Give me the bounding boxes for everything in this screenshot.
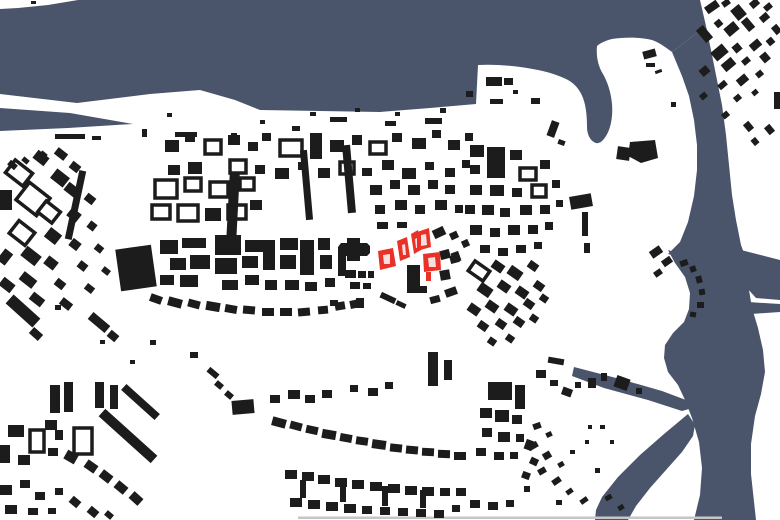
building (95, 382, 104, 408)
building (302, 472, 314, 481)
building (444, 360, 452, 380)
building (377, 222, 388, 229)
building (45, 420, 57, 430)
building (570, 450, 575, 454)
building (480, 245, 490, 253)
building (540, 205, 550, 214)
building (280, 255, 296, 269)
building (388, 484, 400, 493)
building (407, 286, 427, 293)
building (292, 126, 300, 131)
building (601, 373, 607, 381)
building (350, 282, 360, 289)
building (0, 190, 12, 210)
building (167, 113, 172, 117)
building (280, 238, 298, 250)
building (428, 352, 438, 386)
building (488, 502, 498, 510)
building (402, 168, 416, 179)
building (300, 240, 314, 275)
building (242, 256, 258, 268)
building (300, 480, 306, 498)
building (356, 298, 364, 308)
building (48, 508, 56, 514)
building (285, 470, 297, 479)
map-stage (0, 0, 780, 520)
building (416, 509, 426, 517)
building (310, 112, 316, 116)
building (50, 385, 60, 413)
building (243, 305, 256, 314)
building-courtyard-block (230, 160, 246, 173)
building (308, 500, 320, 509)
building (326, 502, 338, 511)
building (556, 200, 563, 207)
building (439, 269, 451, 281)
building (534, 242, 542, 249)
building (588, 425, 592, 429)
building (470, 185, 482, 195)
building (180, 275, 198, 287)
building (368, 388, 378, 396)
building (482, 428, 492, 437)
building (434, 510, 444, 518)
building (318, 168, 330, 178)
building (671, 102, 676, 107)
building (495, 410, 509, 422)
building (536, 370, 546, 378)
building (392, 133, 402, 142)
building (318, 238, 330, 250)
building (64, 382, 73, 412)
building (500, 208, 510, 217)
building (280, 308, 292, 316)
building (165, 140, 179, 152)
building (584, 243, 590, 253)
building (370, 185, 382, 195)
building (250, 200, 262, 210)
building (248, 142, 258, 151)
building (646, 63, 655, 67)
building (288, 390, 300, 399)
building (358, 271, 366, 278)
building (397, 222, 407, 228)
building (298, 307, 311, 316)
building (318, 306, 329, 315)
building (330, 300, 338, 306)
building (362, 506, 372, 514)
building (352, 480, 364, 489)
building (385, 382, 393, 389)
building (556, 500, 562, 505)
building (205, 208, 221, 221)
building (160, 240, 178, 254)
building (445, 185, 455, 194)
building (290, 498, 302, 507)
building (352, 135, 362, 145)
building-courtyard-block (155, 180, 177, 198)
building (265, 280, 277, 290)
building (510, 452, 518, 459)
building (245, 240, 263, 252)
building (356, 436, 369, 446)
building (92, 136, 101, 140)
building (55, 305, 61, 310)
building (420, 490, 426, 508)
building (412, 138, 426, 149)
building (262, 308, 274, 316)
building (330, 140, 344, 152)
highlight-building-1-courtyard (383, 254, 390, 264)
building (585, 440, 589, 444)
building (8, 425, 24, 437)
building (322, 390, 332, 398)
building (325, 278, 335, 287)
building (550, 380, 558, 386)
building (465, 205, 475, 214)
building (382, 160, 394, 170)
building (482, 205, 494, 215)
building (275, 168, 289, 179)
building-courtyard-block (74, 428, 92, 454)
building (470, 500, 480, 508)
building (488, 382, 512, 400)
building (575, 382, 581, 388)
building (690, 312, 697, 318)
building (345, 270, 356, 278)
building (462, 160, 470, 168)
building (405, 486, 417, 495)
water-body-river-arm-thin (745, 302, 780, 314)
building (545, 222, 553, 230)
building-courtyard-block (30, 430, 44, 452)
building (245, 275, 259, 285)
building (432, 130, 441, 138)
building (35, 492, 45, 500)
building (115, 245, 156, 292)
building (55, 430, 63, 440)
building-courtyard-block (205, 140, 221, 154)
building (368, 271, 374, 278)
building (476, 448, 486, 456)
building (600, 425, 605, 429)
building (440, 488, 450, 496)
building (490, 185, 504, 196)
building (510, 150, 522, 160)
building (408, 185, 420, 195)
building (28, 508, 38, 515)
building (362, 168, 372, 176)
building (516, 434, 524, 442)
building (448, 140, 460, 150)
building (425, 118, 442, 124)
building (540, 160, 550, 169)
building (406, 445, 419, 454)
building (508, 225, 520, 235)
building (395, 112, 400, 116)
building (355, 108, 360, 112)
building (385, 121, 396, 126)
building (699, 289, 706, 296)
building (185, 133, 195, 142)
building (5, 505, 17, 514)
map-baseline (298, 517, 722, 520)
building (466, 91, 473, 97)
building (445, 168, 455, 177)
building (255, 165, 265, 174)
building (188, 162, 202, 174)
building (588, 378, 596, 388)
building (515, 385, 525, 409)
building (486, 77, 502, 86)
building (380, 507, 390, 515)
building (305, 395, 315, 403)
building (228, 135, 240, 145)
building (610, 440, 614, 444)
building (222, 280, 238, 290)
building (330, 117, 347, 122)
building (774, 92, 780, 109)
building (582, 212, 588, 236)
building (470, 165, 480, 174)
building (320, 255, 332, 269)
building (142, 129, 147, 137)
figure-ground-map (0, 0, 780, 520)
building (636, 388, 642, 394)
building-courtyard-block (370, 142, 386, 154)
building (487, 147, 505, 178)
building (305, 282, 317, 291)
building (48, 448, 58, 456)
building (390, 180, 400, 189)
building (130, 360, 135, 364)
building (318, 475, 330, 484)
building (382, 486, 388, 506)
building (182, 238, 206, 248)
building (395, 200, 407, 210)
building (480, 408, 492, 418)
building (20, 480, 30, 488)
building (498, 248, 508, 256)
building-courtyard-block (185, 178, 201, 191)
building (438, 450, 450, 458)
highlight-building-4-courtyard (421, 234, 427, 246)
building (270, 395, 280, 403)
building (231, 399, 254, 415)
building (470, 145, 484, 157)
building (452, 505, 460, 512)
building (168, 165, 180, 175)
building (506, 500, 514, 507)
building (375, 205, 385, 214)
highlight-building-5-courtyard (428, 257, 436, 267)
building (55, 134, 85, 139)
building (344, 504, 356, 513)
building (262, 133, 271, 141)
building (528, 225, 538, 234)
building-courtyard-block (152, 205, 170, 219)
building (524, 486, 530, 492)
building (350, 385, 358, 392)
building (428, 180, 438, 189)
building (160, 275, 174, 285)
building (454, 452, 466, 460)
building (470, 225, 482, 235)
building (18, 455, 30, 465)
building (531, 98, 540, 104)
building (490, 99, 503, 104)
building (504, 78, 513, 85)
building (150, 340, 156, 345)
building (260, 120, 265, 124)
building (455, 205, 463, 213)
building (340, 482, 346, 502)
building (516, 245, 526, 253)
building (512, 415, 522, 424)
building (31, 1, 36, 4)
building (552, 180, 560, 188)
building (215, 258, 237, 274)
building (310, 133, 322, 159)
building (285, 280, 299, 290)
building (398, 508, 408, 516)
building (190, 352, 198, 358)
building (100, 340, 105, 344)
building (263, 240, 275, 270)
building (494, 452, 504, 460)
building (595, 468, 600, 473)
building (425, 162, 434, 170)
building (215, 235, 241, 255)
building-courtyard-block (210, 182, 228, 197)
building (498, 432, 510, 442)
building (0, 485, 12, 495)
building (170, 258, 186, 270)
building (435, 200, 447, 210)
building (512, 188, 522, 197)
building (110, 385, 118, 409)
building (55, 488, 63, 495)
building (415, 205, 425, 214)
building-courtyard-block (240, 178, 254, 190)
building (697, 302, 704, 308)
building-courtyard-block (178, 205, 198, 221)
building (440, 108, 446, 113)
building (465, 133, 473, 141)
building (0, 445, 10, 463)
highlight-building-5-annex (426, 272, 431, 281)
building (456, 488, 466, 496)
building (490, 228, 500, 237)
building (370, 482, 382, 491)
building-courtyard-block (280, 140, 302, 156)
building (513, 90, 518, 94)
building (390, 443, 403, 452)
building (363, 283, 371, 289)
building-courtyard-block (520, 168, 536, 180)
building-courtyard-block (532, 185, 546, 197)
building (422, 448, 434, 457)
building (520, 205, 532, 215)
building (190, 255, 210, 269)
